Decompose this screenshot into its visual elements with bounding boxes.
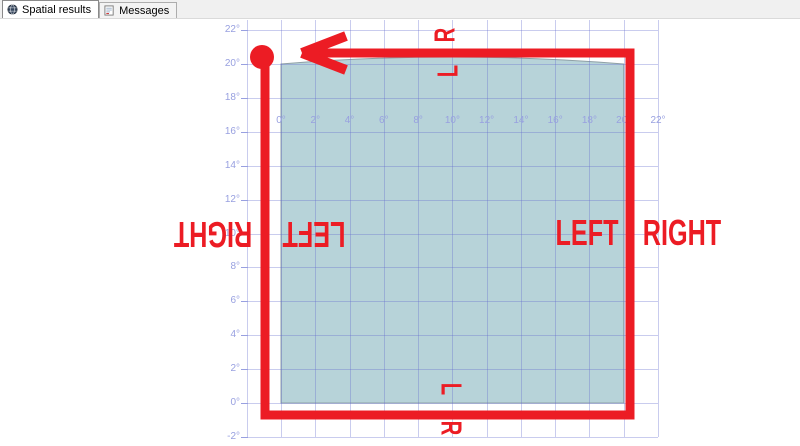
annotation-label-layer: RLRIGHTLEFTLEFTRIGHTLR [0, 0, 800, 446]
tab-label: Spatial results [22, 4, 91, 16]
tab-label: Messages [119, 5, 169, 17]
side-label-r: R [430, 28, 463, 43]
tab-messages[interactable]: Messages [99, 2, 177, 18]
side-label-left: LEFT [283, 213, 346, 255]
results-tabbar: Spatial results Messages [0, 0, 800, 19]
side-label-right: RIGHT [174, 213, 252, 255]
side-label-l: L [433, 65, 466, 77]
side-label-left: LEFT [556, 212, 619, 254]
spatial-plot-canvas[interactable]: 22°20°18°16°14°12°10°8°6°4°2°0°-2°0°2°4°… [0, 0, 800, 446]
side-label-l: L [434, 383, 467, 395]
spatial-results-window: Spatial results Messages 22°20°18°16°14°… [0, 0, 800, 446]
side-label-r: R [434, 421, 467, 436]
messages-icon [104, 5, 115, 16]
globe-icon [7, 4, 18, 15]
tab-spatial-results[interactable]: Spatial results [2, 0, 99, 18]
side-label-right: RIGHT [643, 212, 721, 254]
